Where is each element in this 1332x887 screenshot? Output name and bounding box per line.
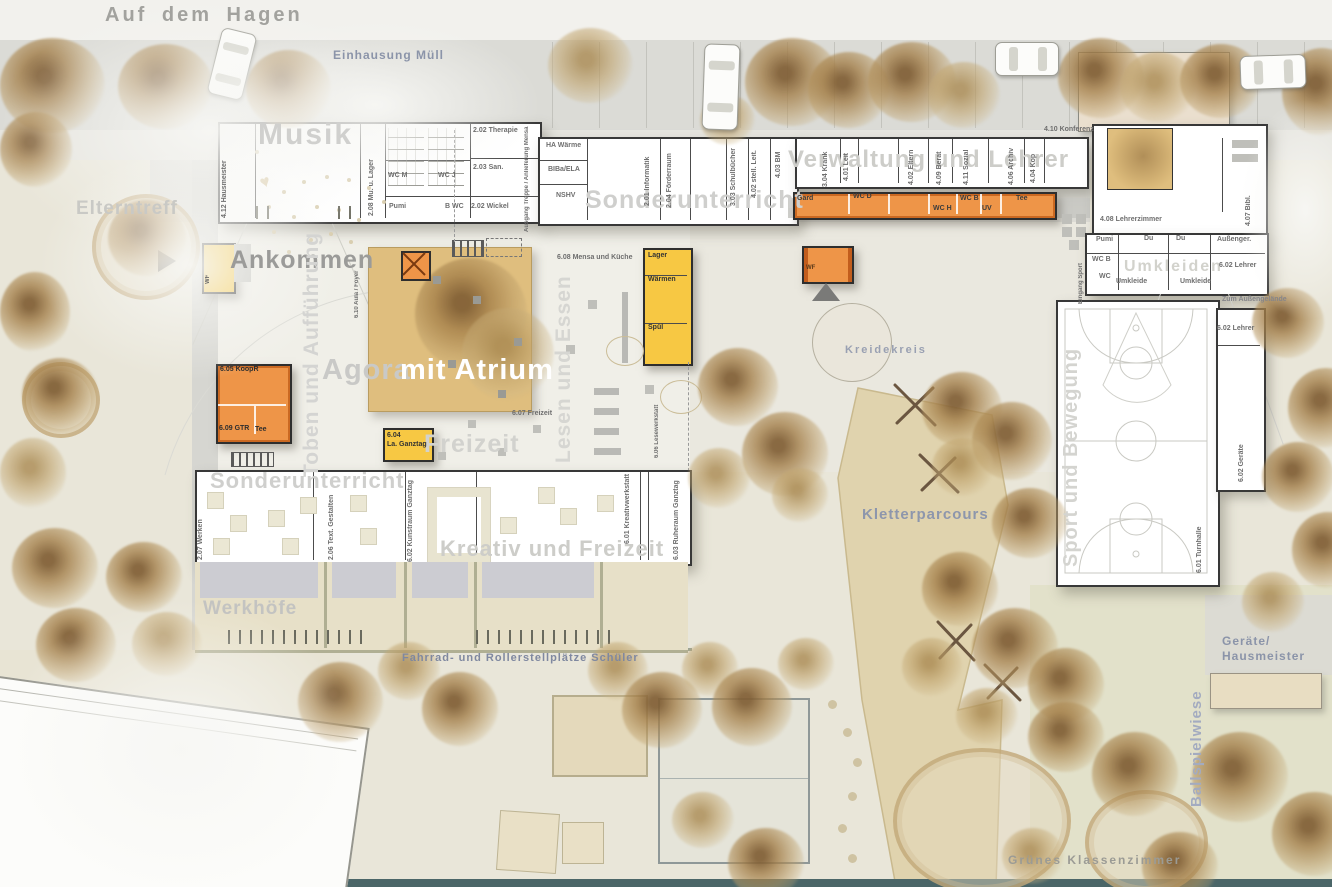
agora-label: Agora [322,354,411,387]
room-label: 2.08 Mu. u. Lager [368,140,375,216]
room-label: 4.09 Berat [936,139,943,185]
tree [712,668,792,746]
room-label: Pumi [389,203,406,210]
kreidekreis-label: Kreidekreis [845,344,927,356]
room-label: WC J [438,172,456,179]
room-label: Umkleide [1180,278,1211,285]
tree [298,662,383,742]
room-label: WC B [960,195,979,202]
room-label: 4.03 BM [775,138,782,178]
room-label: 6.02 Kunstraum Ganztag [407,472,414,562]
car [995,42,1059,76]
verwaltung-label: Verwaltung und Lehrer [788,146,1069,174]
tree [1092,732,1178,816]
room-label: WC M [388,172,407,179]
tree [106,542,182,612]
tree [992,488,1068,558]
tree [0,272,70,352]
room-label: Gard [797,195,813,202]
room-label: WF [205,256,211,284]
street-label: Auf dem Hagen [105,4,303,27]
room-label: 2.07 Werken [197,512,204,560]
sonderunterricht-eg-label: Sonderunterricht [210,468,404,494]
ausgang-treppe-label: Ausgang Treppe / Anlieferung Mensa [524,82,530,232]
tree [778,638,834,690]
room-label: 6.04 [387,432,401,439]
tree [1262,442,1332,512]
room-label: 4.04 Kop [1030,139,1037,183]
room-label: 4.01 Leit [843,139,850,181]
tree [246,50,331,128]
elterntreff-label: Elterntreff [76,198,178,220]
room-label: 2.03 San. [473,164,503,171]
room-label: WC H [933,205,952,212]
tree [0,112,72,187]
room-label: UV [982,205,992,212]
room-label: 6.02 Lehrer [1217,325,1254,332]
fahrrad-label: Fahrrad- und Rollerstellplätze Schüler [402,652,639,664]
room-label: 3.04 Krank [822,139,829,187]
geraete-label-2: Hausmeister [1222,649,1305,663]
room-label: 2.04 Förderraum [666,142,673,208]
site-plan: ♥ [0,0,1332,887]
tree [422,672,498,746]
room-label: Pumi [1096,236,1113,243]
room-label: 2.06 Text. Gestalten [328,486,335,560]
room-label: 6.02 Geräte [1238,430,1245,482]
tree [698,348,778,426]
room-label: 6.01 Turnhalle [1196,513,1203,573]
room-label: 3.03 Schulbücher [730,138,737,206]
lesen-essen-label: Lesen und Essen [552,288,576,463]
room-label: 2.01 Informatik [644,142,651,206]
tree [902,638,962,696]
muell-label: Einhausung Müll [333,48,444,62]
room-label: WC [1099,273,1111,280]
tree [1028,702,1104,772]
room-label: 4.12 Hausmeister [221,136,228,218]
room-label: B WC [445,203,464,210]
room-label: WC B [1092,256,1111,263]
tree [118,44,213,129]
room-label: 4.11 Sozial [963,139,970,185]
room-label: 6.09 GTR [219,425,249,432]
mit-atrium-label: mit Atrium [400,354,554,387]
musik-label: Musik [258,118,353,152]
room-label: Tee [255,426,267,433]
tree [928,62,1000,128]
room-label: 6.01 Kreativwerkstatt [624,482,631,544]
geraete-label-1: Geräte/ [1222,634,1270,648]
room-label: 2.02 Therapie [473,127,518,134]
toben-label: Toben und Aufführung [300,232,324,477]
room-label: Umkleide [1116,278,1147,285]
freizeit-label: Freizeit [424,430,520,459]
room-label: 6.05 KoopR [220,366,259,373]
tree [132,612,202,676]
room-label: BIBa/ELA [548,166,580,173]
room-label: HA Wärme [546,142,581,149]
room-label: NSHV [556,192,575,199]
room-label: Außenger. [1217,236,1251,243]
room-label: 4.02 stell. Leit. [751,138,758,198]
sport-bewegung-label: Sport und Bewegung [1060,322,1083,567]
tree [922,552,998,626]
room-label: 6.03 Ruheraum Ganztag [673,476,680,560]
room-label: 6.02 Lehrer [1219,262,1256,269]
tree [688,448,750,508]
kletterparcours-label: Kletterparcours [862,506,989,523]
room-label: 4.06 Archiv [1008,139,1015,185]
room-label: 6.07 Freizeit [512,410,552,417]
werkhoefe-label: Werkhöfe [203,598,297,620]
zum-aussengelaende-label: Zum Außengelände [1222,296,1287,303]
room-label: Du [1144,235,1153,242]
car [1239,54,1306,90]
umkleiden-label: Umkleiden [1124,258,1223,276]
room-label: La. Ganztag [387,441,427,448]
tree [1242,572,1304,632]
room-label: Lager [648,252,667,259]
room-label: WF [806,265,815,271]
room-label: Du [1176,235,1185,242]
room-label: 6.10 Aula / Foyer [354,256,360,318]
room-label: 6.08 Mensa und Küche [557,254,632,261]
room-label: 4.10 Konferenz [1044,126,1094,133]
tree [12,528,98,608]
tree [22,358,98,432]
ballspielwiese-label: Ballspielwiese [1188,662,1205,807]
room-label: 4.02 Eltern [908,139,915,185]
room-label: Spül [648,324,663,331]
tree [36,608,116,682]
sonderunterricht-og-label: Sonderunterricht [585,186,804,215]
room-label: 4.07 Bibl. [1245,188,1252,226]
room-label: 2.02 Wickel [471,203,509,210]
room-label: Tee [1016,195,1028,202]
room-label: 4.08 Lehrerzimmer [1100,216,1162,223]
tree [1192,732,1288,822]
room-label: Wärmen [648,276,676,283]
room-label: 6.06 Lesewerkstatt [654,394,660,458]
eingang-sport-label: Eingang Sport [1078,250,1084,304]
tree [0,438,66,508]
tree [772,468,828,522]
tree [932,438,994,496]
tree [548,28,633,103]
tree [956,688,1018,744]
tree [672,792,734,848]
gruenes-klassenzimmer-label: Grünes Klassenzimmer [1008,853,1181,867]
car [702,43,741,130]
room-label: WC D [853,193,872,200]
